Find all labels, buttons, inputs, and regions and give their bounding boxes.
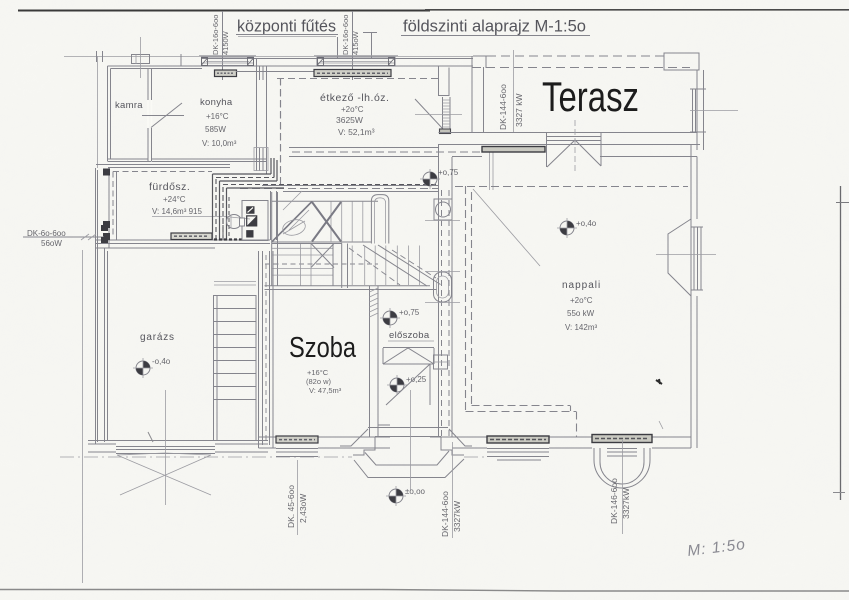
svg-text:Szoba: Szoba [289,332,357,364]
svg-text:Terasz: Terasz [542,73,639,120]
svg-text:(82o w): (82o w) [306,377,332,386]
svg-text:-o,4o: -o,4o [152,357,171,366]
svg-text:DK-16o-6oo: DK-16o-6oo [341,15,350,55]
svg-text:3625W: 3625W [336,115,363,125]
svg-text:földszinti alaprajz M-1:5o: földszinti alaprajz M-1:5o [403,18,586,36]
svg-text:előszoba: előszoba [389,330,430,341]
svg-text:DK-144-6oo: DK-144-6oo [440,491,450,537]
svg-text:fürdősz.: fürdősz. [149,181,190,193]
svg-text:+16°C: +16°C [307,368,329,377]
svg-text:+24°C: +24°C [163,195,186,204]
svg-text:+2o°C: +2o°C [341,105,364,114]
svg-text:V: 47,5m³: V: 47,5m³ [309,386,342,395]
svg-text:+o,75: +o,75 [399,308,420,317]
svg-text:konyha: konyha [200,97,233,108]
svg-text:3327kW: 3327kW [452,501,462,532]
svg-text:+2o°C: +2o°C [570,296,593,305]
svg-text:4150W: 4150W [221,30,230,55]
svg-text:DK-144-6oo: DK-144-6oo [498,84,508,130]
svg-text:DK-6o-6oo: DK-6o-6oo [27,229,66,238]
svg-text:+o,75: +o,75 [438,168,459,177]
svg-text:585W: 585W [205,125,226,134]
svg-text:nappali: nappali [562,280,601,291]
svg-text:kamra: kamra [115,100,143,111]
svg-text:2,43oW: 2,43oW [298,494,308,523]
svg-text:V: 52,1m³: V: 52,1m³ [338,127,375,137]
svg-text:415oW: 415oW [351,30,360,55]
svg-text:55o kW: 55o kW [567,309,595,318]
svg-text:+16°C: +16°C [206,112,229,121]
svg-text:DK. 45-6oo: DK. 45-6oo [286,485,296,528]
svg-text:DK-16o-6oo: DK-16o-6oo [211,15,220,55]
svg-text:+o,4o: +o,4o [576,219,597,228]
svg-text:3327kW: 3327kW [621,488,631,519]
svg-text:V: 142m³: V: 142m³ [565,323,597,332]
svg-text:V: 14,6m³ 915: V: 14,6m³ 915 [152,207,203,216]
svg-text:±o,oo: ±o,oo [405,487,426,496]
svg-text:központi fűtés: központi fűtés [237,18,336,36]
svg-text:DK-146-6oo: DK-146-6oo [609,478,619,524]
svg-text:V: 10,0m³: V: 10,0m³ [202,139,237,148]
svg-text:étkező -lh.óz.: étkező -lh.óz. [320,92,389,104]
svg-text:garázs: garázs [140,332,175,343]
svg-text:56oW: 56oW [41,239,62,248]
svg-text:3327 kW: 3327 kW [514,93,524,127]
